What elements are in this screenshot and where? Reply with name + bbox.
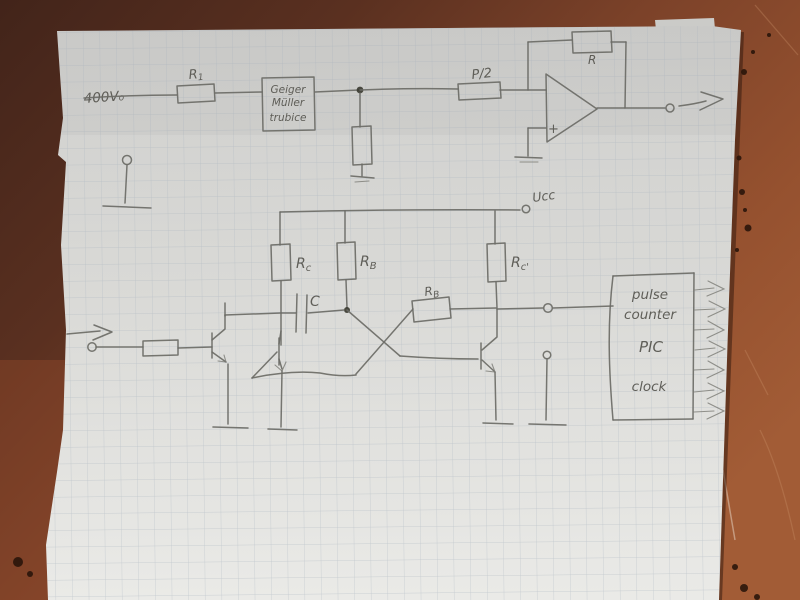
rc-right-label-main: R <box>511 255 521 271</box>
t3-ground-bar <box>483 423 513 424</box>
wire-feedback-down <box>625 42 626 108</box>
rc-left-label-sub: c <box>306 263 312 274</box>
t2-ground-bar <box>268 429 297 430</box>
rb-left-label-sub: B <box>370 261 377 272</box>
geiger-label-1: Geiger <box>271 84 307 96</box>
wire-input-to-t1 <box>178 347 212 348</box>
wire-node-to-terminal <box>497 308 543 309</box>
ground-symbol-opamp <box>515 157 542 158</box>
t1-ground-bar <box>213 427 248 428</box>
schematic-photo-canvas: 400Vo R1 Geiger Müller trubice P/2 R + <box>0 0 800 600</box>
vcc-label: Ucc <box>531 187 556 205</box>
pot-label: P/2 <box>471 66 493 83</box>
t2-emitter-wire <box>281 371 282 427</box>
wire-rb-left-down <box>346 280 347 308</box>
feedback-label: R <box>588 53 596 67</box>
counter-label-4: clock <box>632 379 668 395</box>
counter-label-1: pulse <box>631 287 668 303</box>
t3-emitter-wire <box>495 372 496 420</box>
rc-left-label-main: R <box>296 256 306 272</box>
r1-label-sub: 1 <box>198 73 205 83</box>
cap-label: C <box>310 294 320 310</box>
rc-right-label-sub: c' <box>521 262 529 273</box>
wire-rc-right-down <box>496 282 497 308</box>
cap-plate-right <box>306 295 307 333</box>
geiger-label-2: Müller <box>272 97 305 109</box>
photo-hand-drawn-schematic: 400Vo R1 Geiger Müller trubice P/2 R + <box>0 0 800 600</box>
counter-label-2: counter <box>624 307 677 323</box>
opamp-plus-input: + <box>548 122 559 137</box>
rb-left-label-main: R <box>360 254 370 270</box>
ground-terminal-bar <box>529 424 566 425</box>
cap-plate-left <box>296 294 297 332</box>
counter-label-3: PIC <box>639 338 663 356</box>
counter-box-bottom <box>613 419 693 420</box>
geiger-label-3: trubice <box>270 112 307 124</box>
wire-r1-to-geiger <box>215 92 262 93</box>
ground-terminal-wire <box>546 359 547 420</box>
counter-box-right <box>693 273 694 419</box>
wire-rb-to-node <box>450 308 496 309</box>
